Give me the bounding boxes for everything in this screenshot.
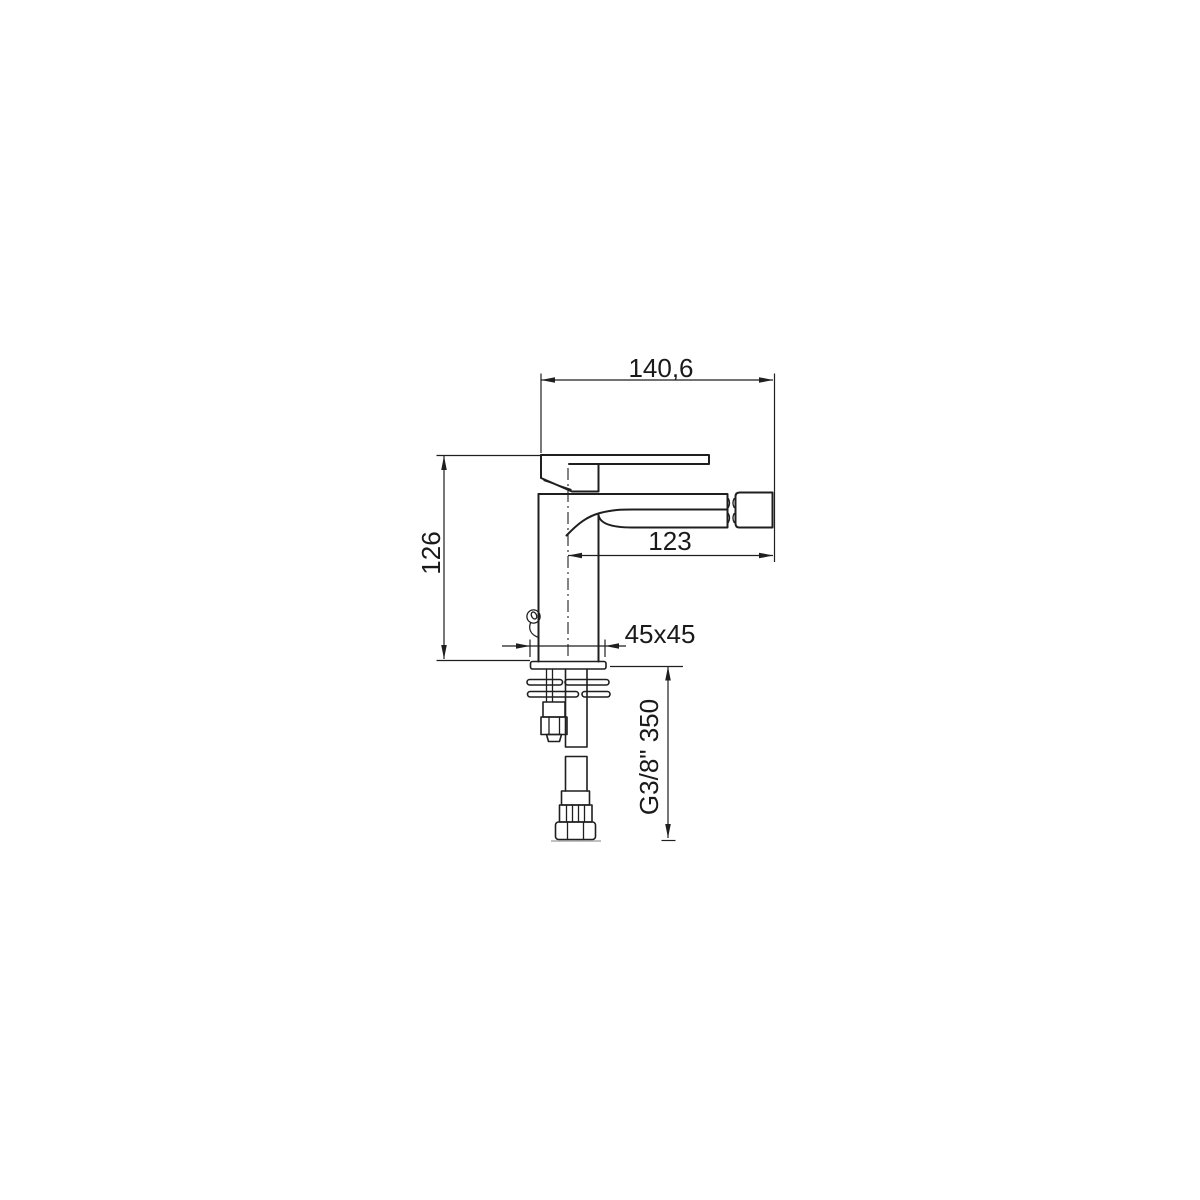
hose-end-nut [556, 822, 596, 840]
valve-connector [541, 702, 567, 742]
hose-ribbed-section [560, 805, 593, 822]
arrowhead-left [541, 377, 555, 383]
lever-handle [541, 455, 709, 492]
connector-cap [547, 735, 562, 742]
dimension-body-height: 126 [416, 456, 540, 661]
ring-inner [530, 611, 538, 620]
mounting-base [527, 662, 610, 748]
supply-hose [551, 757, 601, 842]
dim-body-height-label: 126 [416, 531, 446, 574]
handle-base [541, 455, 599, 492]
aerator-outline [736, 493, 773, 528]
main-tube [566, 669, 588, 747]
nut-facet-lines [568, 822, 584, 840]
dimension-hose-spec: G3/8" 350 [610, 667, 683, 841]
aerator [728, 493, 772, 528]
hex-facet-lines [549, 717, 560, 735]
arrowhead-right [759, 553, 773, 559]
technical-drawing: 140,6 126 123 45x45 G3/8" 350 [0, 0, 1200, 1200]
hose-segment [566, 757, 588, 792]
arrowhead-right [759, 377, 773, 383]
ring-tail [530, 623, 539, 638]
dim-spout-reach-label: 123 [648, 526, 691, 556]
dim-base-size-label: 45x45 [625, 619, 696, 649]
handle-base-inner-edge [544, 481, 571, 490]
dim-hose-spec-label: G3/8" 350 [634, 699, 664, 815]
base-plate [531, 662, 607, 670]
arrowhead-left [568, 553, 582, 559]
arrowhead-top [665, 667, 671, 681]
arrowhead-bottom [441, 645, 447, 659]
joint-bracket-upper-right [733, 499, 734, 508]
hose-collar [562, 791, 590, 805]
connector-hex-nut [541, 717, 567, 735]
rib-lines [567, 805, 585, 822]
joint-bracket-lower-right [733, 514, 734, 523]
drawing-canvas: 140,6 126 123 45x45 G3/8" 350 [0, 0, 1200, 1200]
arrowhead-left [516, 643, 530, 649]
arrowhead-bottom [665, 824, 671, 838]
arrowhead-top [441, 456, 447, 470]
connector-block [543, 702, 565, 717]
dim-total-width-label: 140,6 [628, 353, 693, 383]
arrowhead-right [605, 643, 619, 649]
lever-bar [541, 455, 709, 464]
spout-inner-curve [567, 510, 728, 536]
washer-row1-left [527, 680, 563, 686]
